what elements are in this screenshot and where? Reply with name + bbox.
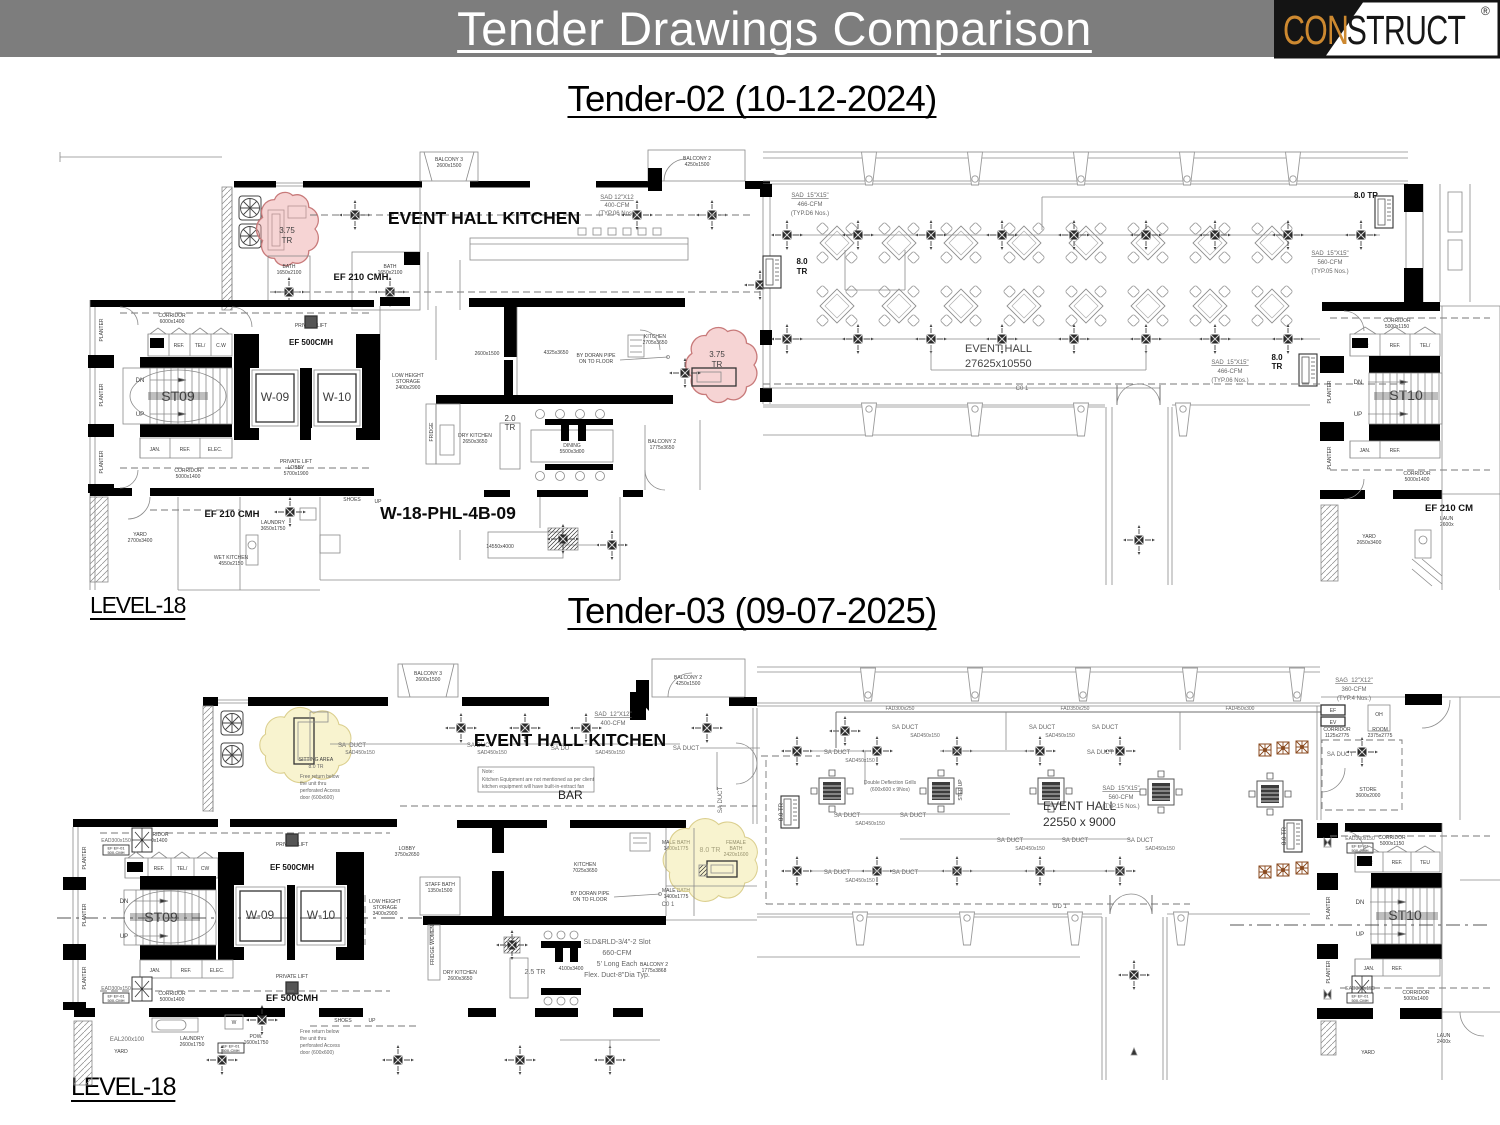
svg-text:W-09: W-09 xyxy=(246,908,275,922)
svg-text:2400x: 2400x xyxy=(1437,1039,1451,1045)
svg-text:Note:: Note: xyxy=(482,769,494,775)
svg-text:8.0 TR: 8.0 TR xyxy=(309,764,324,770)
svg-text:SA DUCT: SA DUCT xyxy=(1062,838,1089,844)
svg-text:SA DUCT: SA DUCT xyxy=(892,870,919,876)
svg-text:8.0 TR: 8.0 TR xyxy=(1282,826,1288,845)
svg-text:2375x2775: 2375x2775 xyxy=(1368,733,1393,739)
svg-text:2600x3650: 2600x3650 xyxy=(448,976,473,982)
svg-text:(600x600 x 9Nos): (600x600 x 9Nos) xyxy=(870,787,910,793)
svg-text:SA DUCT: SA DUCT xyxy=(1127,838,1154,844)
svg-text:8.0 TR: 8.0 TR xyxy=(779,802,785,821)
svg-text:REF.: REF. xyxy=(181,968,192,974)
svg-text:UP: UP xyxy=(369,1018,377,1024)
svg-text:TR: TR xyxy=(282,236,293,245)
svg-text:SAD450x150: SAD450x150 xyxy=(595,750,625,756)
svg-text:DN: DN xyxy=(136,378,145,384)
svg-text:STEP UP: STEP UP xyxy=(958,779,964,801)
svg-text:Free return below: Free return below xyxy=(300,1029,340,1035)
svg-text:REF.: REF. xyxy=(1392,966,1403,972)
svg-text:UP: UP xyxy=(375,499,383,505)
svg-text:SAD 12"X12: SAD 12"X12 xyxy=(600,195,634,201)
svg-text:EAL200x100: EAL200x100 xyxy=(110,1037,145,1043)
svg-text:SAD450x150: SAD450x150 xyxy=(345,750,375,756)
svg-text:SAD450x150: SAD450x150 xyxy=(845,758,875,764)
svg-text:SHOES: SHOES xyxy=(343,497,361,503)
svg-text:REF.: REF. xyxy=(174,343,185,349)
svg-text:TR: TR xyxy=(1272,362,1283,371)
svg-text:SAG 12"X12": SAG 12"X12" xyxy=(1335,678,1373,684)
svg-text:REF.: REF. xyxy=(1392,860,1403,866)
svg-text:5000x1150: 5000x1150 xyxy=(1385,324,1410,330)
svg-text:TR: TR xyxy=(505,423,516,432)
svg-text:FRIDGE: FRIDGE xyxy=(429,422,435,442)
svg-text:PLANTER: PLANTER xyxy=(82,846,88,869)
svg-text:UP: UP xyxy=(1354,412,1362,418)
svg-text:SA DUCT: SA DUCT xyxy=(1087,750,1114,756)
svg-text:YARD: YARD xyxy=(114,1049,128,1055)
svg-text:3600x2000: 3600x2000 xyxy=(1356,793,1381,799)
svg-text:C0 1: C0 1 xyxy=(1016,386,1029,392)
svg-text:SITTING AREA: SITTING AREA xyxy=(299,757,334,763)
svg-text:BAR: BAR xyxy=(558,788,583,802)
svg-text:1650x2100: 1650x2100 xyxy=(277,270,302,276)
svg-text:(TYP.06 Nos.): (TYP.06 Nos.) xyxy=(598,211,635,217)
svg-text:EV: EV xyxy=(1330,720,1337,726)
svg-text:560-CFM: 560-CFM xyxy=(1108,795,1133,801)
svg-text:2600x1500: 2600x1500 xyxy=(416,677,441,683)
svg-text:perforated Access: perforated Access xyxy=(300,1043,341,1049)
svg-text:PLANTER: PLANTER xyxy=(99,450,105,473)
svg-text:2600x1500: 2600x1500 xyxy=(475,351,500,357)
svg-text:PLANTER: PLANTER xyxy=(1327,446,1333,469)
svg-text:EVENT HALL: EVENT HALL xyxy=(965,343,1032,355)
svg-text:SAD450x150: SAD450x150 xyxy=(477,750,507,756)
svg-text:2600x1500: 2600x1500 xyxy=(437,163,462,169)
svg-text:22550 x 9000: 22550 x 9000 xyxy=(1043,815,1116,829)
svg-text:27625x10550: 27625x10550 xyxy=(965,358,1032,370)
svg-text:(TYP.05 Nos.): (TYP.05 Nos.) xyxy=(1311,269,1348,275)
svg-text:1775x3868: 1775x3868 xyxy=(642,968,667,974)
svg-text:SAD450x150: SAD450x150 xyxy=(845,878,875,884)
svg-text:SA DUCT: SA DUCT xyxy=(997,838,1024,844)
svg-text:FRIDGE WOMEN: FRIDGE WOMEN xyxy=(430,925,436,965)
svg-text:the unit thru: the unit thru xyxy=(300,1036,327,1042)
svg-text:ON TO FLOOR: ON TO FLOOR xyxy=(579,359,614,365)
svg-text:EAD300x150: EAD300x150 xyxy=(1345,986,1375,992)
svg-text:SA DUCT: SA DUCT xyxy=(892,725,919,731)
svg-text:PLANTER: PLANTER xyxy=(1327,380,1333,403)
svg-text:TEL/: TEL/ xyxy=(177,866,188,872)
svg-text:TEL/: TEL/ xyxy=(195,343,206,349)
svg-text:EVENT HALL KITCHEN: EVENT HALL KITCHEN xyxy=(388,208,580,228)
svg-text:FAD300x250: FAD300x250 xyxy=(886,706,915,712)
svg-text:REF.: REF. xyxy=(1390,343,1401,349)
svg-text:3.75: 3.75 xyxy=(709,350,725,359)
svg-text:466-CFM: 466-CFM xyxy=(1217,369,1242,375)
svg-text:CW: CW xyxy=(201,866,210,872)
svg-text:5000x1400: 5000x1400 xyxy=(1405,477,1430,483)
svg-text:W-09: W-09 xyxy=(261,390,290,404)
svg-text:OH: OH xyxy=(1375,712,1383,718)
svg-text:SA DUCT: SA DUCT xyxy=(1029,725,1056,731)
svg-text:CON: CON xyxy=(1283,6,1348,53)
svg-text:1600x1750: 1600x1750 xyxy=(244,1040,269,1046)
svg-text:8.0: 8.0 xyxy=(796,257,808,266)
svg-text:6000x1400: 6000x1400 xyxy=(160,319,185,325)
svg-text:ON TO FLOOR: ON TO FLOOR xyxy=(573,897,608,903)
svg-text:REF.: REF. xyxy=(180,447,191,453)
svg-text:REF.: REF. xyxy=(1390,448,1401,454)
svg-text:SAD 15"X15": SAD 15"X15" xyxy=(1311,251,1348,257)
svg-text:400-CFM: 400-CFM xyxy=(604,203,629,209)
svg-text:SAD 12"X12": SAD 12"X12" xyxy=(594,712,631,718)
svg-text:SHOES: SHOES xyxy=(334,1018,352,1024)
svg-text:3400x2900: 3400x2900 xyxy=(373,911,398,917)
svg-text:Free return below: Free return below xyxy=(300,774,340,780)
svg-text:EF 500CMH: EF 500CMH xyxy=(270,863,314,872)
svg-text:C0 1: C0 1 xyxy=(662,902,675,908)
svg-text:FAD350x250: FAD350x250 xyxy=(1061,706,1090,712)
svg-text:2.0: 2.0 xyxy=(504,414,516,423)
svg-text:PLANTER: PLANTER xyxy=(99,318,105,341)
svg-text:UP: UP xyxy=(136,412,144,418)
svg-text:5000x1150: 5000x1150 xyxy=(1380,841,1405,847)
svg-text:SA DUCT: SA DUCT xyxy=(824,870,851,876)
svg-text:5' Long Each: 5' Long Each xyxy=(597,961,638,968)
svg-text:SA DUCT: SA DUCT xyxy=(1092,725,1119,731)
svg-text:5000x1400: 5000x1400 xyxy=(160,997,185,1003)
svg-text:(TYP.D6 Nos.): (TYP.D6 Nos.) xyxy=(791,211,829,217)
svg-text:560-CFM: 560-CFM xyxy=(1317,260,1342,266)
svg-text:5000x1400: 5000x1400 xyxy=(176,474,201,480)
svg-text:PLANTER: PLANTER xyxy=(99,383,105,406)
svg-text:W-10: W-10 xyxy=(323,390,352,404)
svg-text:PLANTER: PLANTER xyxy=(82,903,88,926)
svg-text:EF 500CMH: EF 500CMH xyxy=(266,993,318,1004)
svg-text:STRUCT: STRUCT xyxy=(1347,6,1466,53)
svg-text:4100x3400: 4100x3400 xyxy=(559,966,584,972)
svg-text:door (600x600): door (600x600) xyxy=(300,1050,334,1056)
svg-text:DN: DN xyxy=(1354,380,1363,386)
svg-text:3750x2650: 3750x2650 xyxy=(395,852,420,858)
svg-text:SA DUCT: SA DUCT xyxy=(834,813,861,819)
svg-text:4250x1500: 4250x1500 xyxy=(685,162,710,168)
svg-text:JAN.: JAN. xyxy=(1360,448,1371,454)
svg-text:REF.: REF. xyxy=(154,866,165,872)
svg-text:PLANTER: PLANTER xyxy=(82,966,88,989)
svg-text:3650x1750: 3650x1750 xyxy=(261,526,286,532)
svg-text:2650x3400: 2650x3400 xyxy=(1357,540,1382,546)
svg-text:SAD450x150: SAD450x150 xyxy=(1045,733,1075,739)
svg-text:SA DUCT: SA DUCT xyxy=(1327,752,1354,758)
svg-text:(TYP.15 Nos.): (TYP.15 Nos.) xyxy=(1102,804,1139,810)
svg-text:2600x1750: 2600x1750 xyxy=(180,1042,205,1048)
svg-text:1350x1500: 1350x1500 xyxy=(428,888,453,894)
svg-text:JAN.: JAN. xyxy=(150,447,161,453)
svg-text:400-CFM: 400-CFM xyxy=(600,721,625,727)
svg-text:DD 1: DD 1 xyxy=(1053,904,1067,910)
svg-text:TR: TR xyxy=(797,267,808,276)
svg-text:YARD: YARD xyxy=(1361,1050,1375,1056)
svg-text:EAD300x150: EAD300x150 xyxy=(101,986,131,992)
svg-text:SAD 15"X15": SAD 15"X15" xyxy=(1211,360,1248,366)
svg-text:UP: UP xyxy=(1356,932,1364,938)
svg-text:EF: EF xyxy=(1330,708,1336,714)
svg-text:DN: DN xyxy=(1356,900,1365,906)
svg-text:5000x1400: 5000x1400 xyxy=(1404,996,1429,1002)
svg-text:5500x3d00: 5500x3d00 xyxy=(560,449,585,455)
svg-text:SAD450x150: SAD450x150 xyxy=(910,733,940,739)
svg-text:360-CFM: 360-CFM xyxy=(1341,687,1366,693)
svg-text:SA DUCT: SA DUCT xyxy=(824,750,851,756)
svg-text:SAD 15"X15": SAD 15"X15" xyxy=(1102,786,1139,792)
svg-text:Double Deflection Grills: Double Deflection Grills xyxy=(864,780,917,786)
svg-text:4325x3650: 4325x3650 xyxy=(544,350,569,356)
svg-text:PLANTER: PLANTER xyxy=(1326,896,1332,919)
svg-text:2700x3400: 2700x3400 xyxy=(128,538,153,544)
svg-text:DN: DN xyxy=(120,899,129,905)
svg-text:5700x1900: 5700x1900 xyxy=(284,471,309,477)
svg-text:W: W xyxy=(232,1020,237,1026)
svg-text:SAD450x150: SAD450x150 xyxy=(1145,846,1175,852)
svg-text:JAN.: JAN. xyxy=(150,968,161,974)
svg-text:EF 210 CMH: EF 210 CMH xyxy=(205,509,260,520)
svg-text:ELEC.: ELEC. xyxy=(210,968,224,974)
svg-text:(TYP.4 Nos.): (TYP.4 Nos.) xyxy=(1337,696,1371,702)
svg-text:perforated Access: perforated Access xyxy=(300,788,341,794)
svg-text:TEU: TEU xyxy=(1420,860,1430,866)
svg-text:7025x3650: 7025x3650 xyxy=(573,868,598,874)
svg-text:TEL/: TEL/ xyxy=(1420,343,1431,349)
svg-text:FAD450x300: FAD450x300 xyxy=(1226,706,1255,712)
svg-text:1400x1775: 1400x1775 xyxy=(664,894,689,900)
svg-text:SLD&RLD-3/4"-2 Slot: SLD&RLD-3/4"-2 Slot xyxy=(583,939,650,946)
svg-text:SA DUCT: SA DUCT xyxy=(673,746,700,752)
svg-text:EAD300x150: EAD300x150 xyxy=(101,838,131,844)
svg-text:14550x4000: 14550x4000 xyxy=(486,544,514,550)
svg-text:SAD 15"X15": SAD 15"X15" xyxy=(791,193,828,199)
svg-text:door (600x600): door (600x600) xyxy=(300,795,334,801)
svg-text:660-CFM: 660-CFM xyxy=(602,950,631,957)
svg-text:1125x2775: 1125x2775 xyxy=(1325,733,1350,739)
svg-text:JAN.: JAN. xyxy=(1364,966,1375,972)
svg-text:Flex. Duct-8"Dia Typ.: Flex. Duct-8"Dia Typ. xyxy=(584,972,650,979)
svg-text:the unit thru: the unit thru xyxy=(300,781,327,787)
svg-text:W-10: W-10 xyxy=(307,908,336,922)
svg-text:®: ® xyxy=(1481,4,1490,18)
svg-text:UP: UP xyxy=(120,934,128,940)
svg-text:SA DUCT: SA DUCT xyxy=(900,813,927,819)
svg-text:SAD450x150: SAD450x150 xyxy=(855,821,885,827)
svg-text:W-18-PHL-4B-09: W-18-PHL-4B-09 xyxy=(380,503,516,523)
svg-text:Kitchen Equipment are not ment: Kitchen Equipment are not mentioned as p… xyxy=(482,777,595,783)
svg-text:8.0: 8.0 xyxy=(1271,353,1283,362)
svg-text:SAD450x150: SAD450x150 xyxy=(1015,846,1045,852)
svg-text:1775x3650: 1775x3650 xyxy=(650,445,675,451)
svg-text:4250x1500: 4250x1500 xyxy=(676,681,701,687)
svg-text:EF 210 CMH: EF 210 CMH xyxy=(334,272,389,283)
svg-text:2650x3650: 2650x3650 xyxy=(463,439,488,445)
svg-text:ELEC.: ELEC. xyxy=(208,447,222,453)
svg-text:2705x3650: 2705x3650 xyxy=(643,340,668,346)
svg-text:(TYP.06 Nos.): (TYP.06 Nos.) xyxy=(1211,378,1248,384)
svg-text:PRIVATE LIFT: PRIVATE LIFT xyxy=(276,974,308,980)
svg-text:C.W: C.W xyxy=(216,343,226,349)
svg-text:SA DUCT: SA DUCT xyxy=(718,787,724,814)
svg-text:PLANTER: PLANTER xyxy=(1326,960,1332,983)
svg-text:3.75: 3.75 xyxy=(279,226,295,235)
svg-text:466-CFM: 466-CFM xyxy=(797,202,822,208)
svg-text:EF 210 CM: EF 210 CM xyxy=(1425,503,1473,514)
svg-text:EVENT HALL KITCHEN: EVENT HALL KITCHEN xyxy=(474,730,666,750)
svg-text:2400x2900: 2400x2900 xyxy=(396,385,421,391)
svg-text:EF 500CMH: EF 500CMH xyxy=(289,338,333,347)
